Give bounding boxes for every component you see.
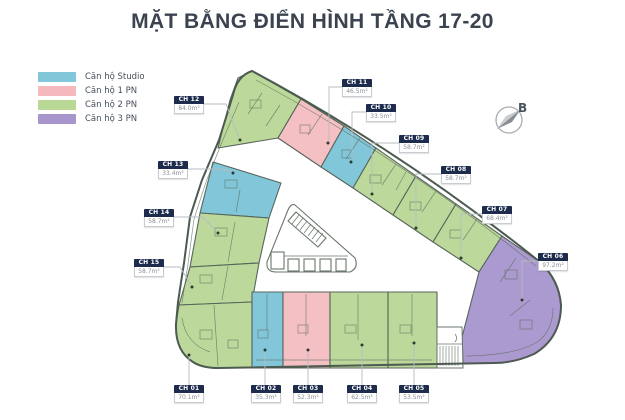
- unit-label-ch07: CH 07 68.4m²: [482, 206, 512, 224]
- unit-label-ch15: CH 15 58.7m²: [134, 259, 164, 277]
- south-stair-block: [437, 327, 463, 368]
- elevator-shaft: [304, 259, 315, 271]
- unit-label-header: CH 14: [144, 209, 174, 217]
- unit-label-ch14: CH 14 58.7m²: [144, 209, 174, 227]
- core-room: [271, 252, 284, 269]
- unit-label-area: 68.4m²: [482, 214, 512, 224]
- floor-plan-svg: B: [0, 0, 625, 420]
- elevator-shaft: [320, 259, 331, 271]
- unit-label-header: CH 06: [538, 253, 568, 261]
- unit-label-header: CH 12: [174, 96, 204, 104]
- unit-label-area: 58.7m²: [144, 217, 174, 227]
- unit-ch03-area: [283, 292, 330, 368]
- compass-north-label: B: [518, 101, 527, 115]
- unit-label-area: 58.7m²: [134, 267, 164, 277]
- unit-label-ch08: CH 08 58.7m²: [441, 166, 471, 184]
- south-lobby: [437, 327, 463, 368]
- unit-label-header: CH 08: [441, 166, 471, 174]
- unit-label-area: 33.4m²: [158, 169, 188, 179]
- unit-label-header: CH 15: [134, 259, 164, 267]
- unit-label-ch09: CH 09 58.7m²: [399, 135, 429, 153]
- unit-label-ch02: CH 02 35.3m²: [251, 385, 281, 403]
- unit-label-area: 62.5m²: [347, 393, 377, 403]
- unit-label-area: 52.3m²: [293, 393, 323, 403]
- unit-label-ch03: CH 03 52.3m²: [293, 385, 323, 403]
- unit-label-header: CH 02: [251, 385, 281, 393]
- elevator-shaft: [288, 259, 299, 271]
- unit-label-area: 33.5m²: [366, 112, 396, 122]
- unit-label-header: CH 09: [399, 135, 429, 143]
- unit-label-ch10: CH 10 33.5m²: [366, 104, 396, 122]
- unit-label-area: 53.5m²: [399, 393, 429, 403]
- unit-label-area: 58.7m²: [399, 143, 429, 153]
- unit-label-ch12: CH 12 84.0m²: [174, 96, 204, 114]
- floor-plan-page: MẶT BẰNG ĐIỂN HÌNH TẦNG 17-20 Căn hộ Stu…: [0, 0, 625, 420]
- compass: B: [496, 101, 527, 133]
- unit-ch15-area: [179, 263, 259, 305]
- unit-label-header: CH 10: [366, 104, 396, 112]
- unit-label-ch13: CH 13 33.4m²: [158, 161, 188, 179]
- unit-label-ch11: CH 11 46.5m²: [342, 79, 372, 97]
- unit-label-ch06: CH 06 97.2m²: [538, 253, 568, 271]
- unit-label-header: CH 04: [347, 385, 377, 393]
- unit-label-area: 84.0m²: [174, 104, 204, 114]
- unit-label-header: CH 13: [158, 161, 188, 169]
- unit-label-area: 46.5m²: [342, 87, 372, 97]
- unit-ch04-area: [330, 292, 388, 368]
- unit-label-area: 35.3m²: [251, 393, 281, 403]
- unit-label-area: 70.1m²: [174, 393, 204, 403]
- unit-ch05-area: [388, 292, 437, 368]
- unit-label-header: CH 05: [399, 385, 429, 393]
- unit-label-header: CH 11: [342, 79, 372, 87]
- unit-ch14-area: [190, 213, 269, 267]
- unit-label-area: 97.2m²: [538, 261, 568, 271]
- unit-label-header: CH 01: [174, 385, 204, 393]
- unit-label-ch04: CH 04 62.5m²: [347, 385, 377, 403]
- unit-label-header: CH 03: [293, 385, 323, 393]
- unit-label-area: 58.7m²: [441, 174, 471, 184]
- unit-label-ch01: CH 01 70.1m²: [174, 385, 204, 403]
- unit-label-ch05: CH 05 53.5m²: [399, 385, 429, 403]
- elevator-shaft: [336, 259, 346, 271]
- unit-label-header: CH 07: [482, 206, 512, 214]
